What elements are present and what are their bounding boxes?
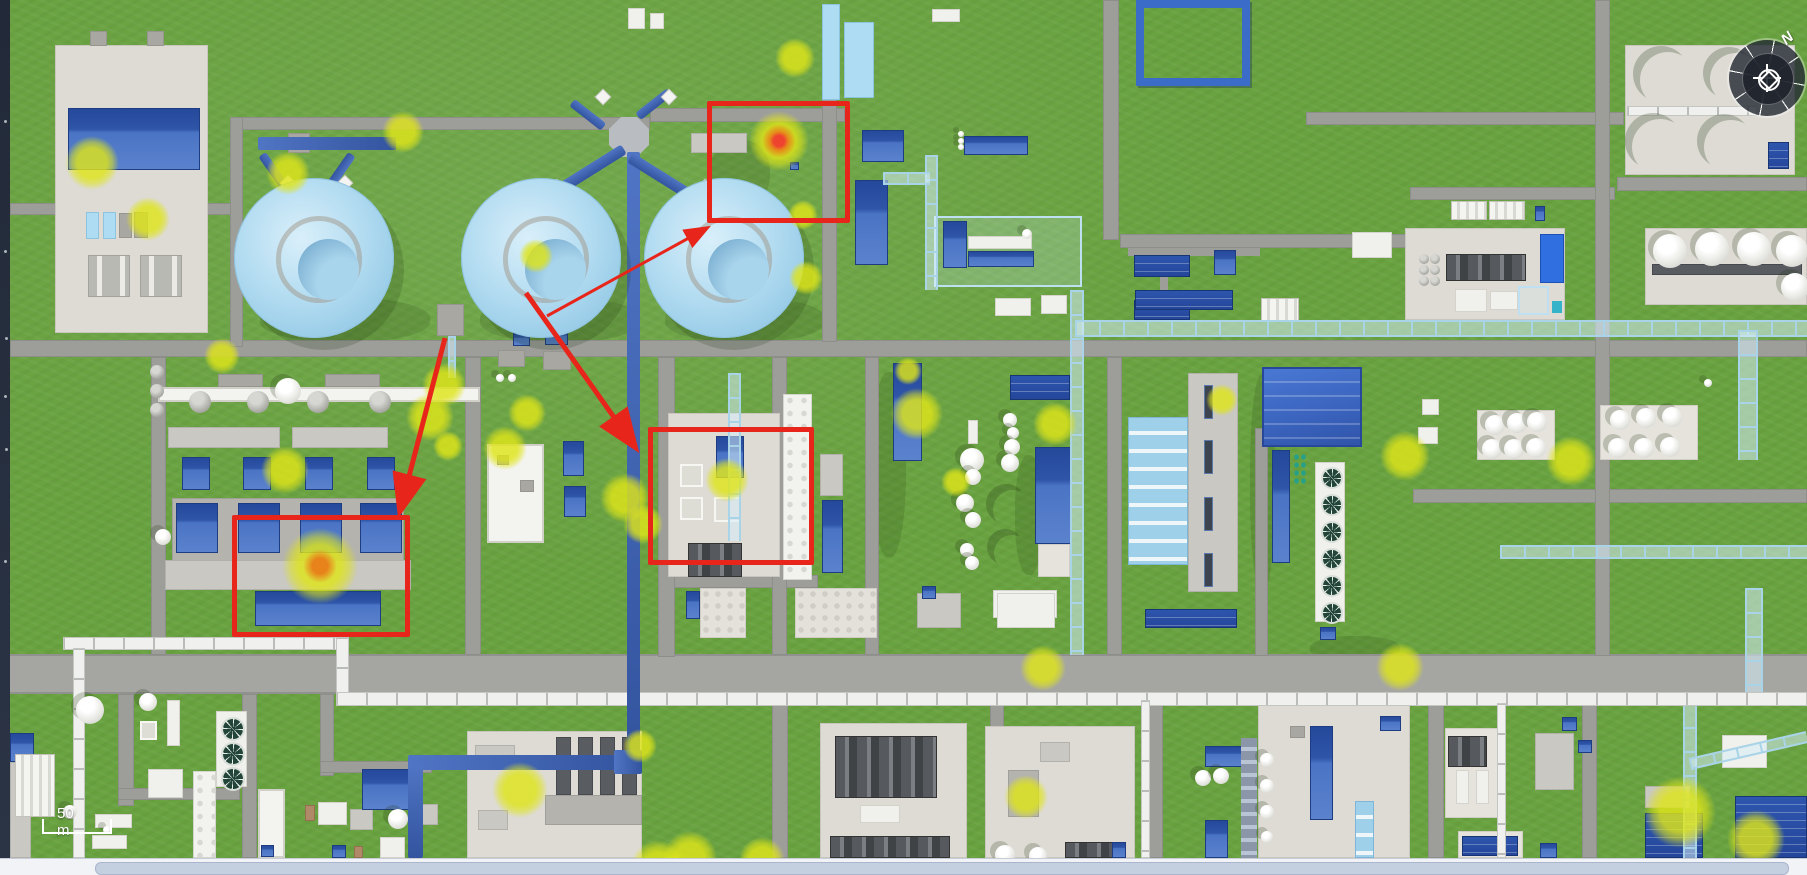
white-pipeline xyxy=(336,637,349,699)
building xyxy=(1552,301,1562,313)
building xyxy=(90,31,107,46)
background-dot xyxy=(4,120,7,123)
building xyxy=(922,586,936,599)
building xyxy=(88,255,130,297)
building xyxy=(1562,717,1577,731)
road xyxy=(1410,187,1615,200)
storage-tank xyxy=(1526,438,1546,458)
building xyxy=(855,180,888,265)
app-background-strip xyxy=(0,0,10,875)
road xyxy=(1617,177,1807,191)
storage-tank xyxy=(189,391,211,413)
building xyxy=(1380,716,1401,731)
building xyxy=(147,31,164,46)
building xyxy=(1010,375,1070,400)
heat-spot-marker[interactable] xyxy=(492,762,548,818)
cooling-fan-icon xyxy=(1321,467,1343,489)
heat-spot-marker[interactable] xyxy=(789,261,823,295)
road xyxy=(1413,489,1807,503)
building xyxy=(380,837,405,858)
building xyxy=(1035,447,1072,544)
storage-tank xyxy=(1632,119,1688,175)
storage-tank xyxy=(1781,273,1807,301)
pipe-rack xyxy=(1738,330,1758,460)
white-pipeline xyxy=(336,692,1807,706)
building xyxy=(92,835,127,849)
storage-tank xyxy=(1430,254,1440,264)
road xyxy=(1428,698,1444,858)
heat-spot-marker[interactable] xyxy=(894,357,922,385)
scale-bracket xyxy=(42,819,112,834)
storage-tank xyxy=(1504,439,1524,459)
building xyxy=(844,22,874,98)
cooling-fan-icon xyxy=(1321,548,1343,570)
storage-tank xyxy=(155,529,171,545)
building xyxy=(1214,250,1236,275)
building xyxy=(1540,843,1557,858)
storage-tank xyxy=(247,391,269,413)
building xyxy=(1768,142,1789,169)
building xyxy=(1578,740,1592,753)
building xyxy=(1352,232,1392,258)
building xyxy=(1627,106,1757,116)
building xyxy=(1145,609,1237,628)
building xyxy=(1451,201,1487,220)
storage-tank xyxy=(958,144,964,150)
road xyxy=(772,694,788,858)
storage-tank xyxy=(1527,412,1547,432)
pipe-rack xyxy=(1745,588,1763,698)
storage-tank xyxy=(1653,234,1687,268)
heat-spot-marker[interactable] xyxy=(623,729,657,763)
building xyxy=(564,486,586,517)
road xyxy=(1306,112,1624,125)
building xyxy=(1355,801,1374,858)
building xyxy=(1041,295,1067,314)
horizontal-scrollbar[interactable] xyxy=(0,858,1807,875)
heat-spot-marker[interactable] xyxy=(775,38,815,78)
storage-tank xyxy=(1608,438,1628,458)
building xyxy=(140,255,182,297)
road xyxy=(1582,698,1597,858)
building xyxy=(140,721,157,740)
storage-tank xyxy=(1213,768,1229,784)
background-dot xyxy=(4,395,7,398)
building xyxy=(1476,770,1489,804)
building xyxy=(997,593,1055,628)
storage-tank xyxy=(1260,779,1274,793)
white-pipeline xyxy=(1497,703,1506,858)
building xyxy=(968,251,1034,267)
building xyxy=(292,427,388,448)
building xyxy=(686,591,700,619)
pipe-cap xyxy=(596,90,610,104)
cooling-fan-icon xyxy=(1321,521,1343,543)
building xyxy=(1205,820,1228,858)
cooling-fan-icon xyxy=(1321,575,1343,597)
storage-tank xyxy=(1662,407,1682,427)
storage-tank xyxy=(1485,415,1505,435)
storage-tank xyxy=(275,378,301,404)
heat-spot-marker[interactable] xyxy=(261,446,309,494)
plant-map-canvas[interactable]: N 50 m xyxy=(10,0,1807,858)
building xyxy=(563,441,584,476)
cooling-fan-icon xyxy=(221,767,245,791)
storage-tank xyxy=(307,391,329,413)
storage-tank xyxy=(1419,265,1429,275)
cooling-fan-icon xyxy=(1321,494,1343,516)
building xyxy=(860,805,900,823)
building xyxy=(1040,742,1070,762)
building xyxy=(964,136,1028,155)
background-dot xyxy=(5,448,8,451)
building xyxy=(1462,836,1518,856)
storage-tank xyxy=(150,365,164,379)
horizontal-scrollbar-thumb[interactable] xyxy=(95,862,1789,875)
storage-tank xyxy=(1419,254,1429,264)
road xyxy=(10,654,1807,694)
building xyxy=(968,236,1032,249)
building xyxy=(1518,286,1549,315)
concrete-pad xyxy=(55,45,208,333)
storage-tank xyxy=(1482,439,1502,459)
building xyxy=(148,769,183,798)
heat-spot-marker[interactable] xyxy=(126,197,170,241)
storage-tank xyxy=(1704,120,1758,174)
storage-tank xyxy=(1737,232,1771,266)
building xyxy=(1261,298,1299,321)
heat-spot-marker[interactable] xyxy=(382,111,424,153)
building xyxy=(350,809,373,830)
heat-spot-marker[interactable] xyxy=(1644,776,1716,848)
building xyxy=(700,588,746,638)
building xyxy=(1272,450,1290,563)
storage-tank xyxy=(965,512,981,528)
compass-control[interactable] xyxy=(1729,40,1805,116)
storage-tank xyxy=(1640,52,1696,108)
building xyxy=(168,427,280,448)
building xyxy=(932,9,960,22)
building xyxy=(795,588,877,638)
storage-tank xyxy=(1260,753,1274,767)
building xyxy=(305,805,315,821)
white-pipeline xyxy=(63,637,348,650)
heat-spot-marker[interactable] xyxy=(1004,775,1048,819)
pipe-rack xyxy=(883,172,930,185)
building xyxy=(545,795,642,825)
building xyxy=(1293,453,1308,485)
heat-spot-marker[interactable] xyxy=(1033,402,1077,446)
building xyxy=(650,13,664,29)
storage-tank xyxy=(960,543,974,557)
building xyxy=(830,836,950,858)
storage-tank xyxy=(1636,408,1656,428)
building xyxy=(1446,254,1526,281)
background-dot xyxy=(4,560,7,563)
heat-spot-marker[interactable] xyxy=(204,338,240,374)
storage-tank xyxy=(1003,413,1017,427)
building xyxy=(943,221,967,268)
app-viewport: N 50 m xyxy=(0,0,1807,875)
building xyxy=(822,4,840,100)
storage-tank xyxy=(958,131,964,137)
storage-tank xyxy=(1007,427,1019,439)
storage-tank xyxy=(1260,805,1274,819)
storage-tank xyxy=(1001,454,1019,472)
white-pipeline xyxy=(1141,700,1150,858)
blue-pipeline xyxy=(408,764,423,858)
building xyxy=(862,130,904,162)
blue-pipeline xyxy=(627,152,640,758)
building xyxy=(1310,726,1333,820)
heat-spot-marker[interactable] xyxy=(433,431,463,461)
building xyxy=(15,754,55,817)
road xyxy=(1107,357,1122,655)
building xyxy=(1455,289,1487,312)
heat-spot-marker[interactable] xyxy=(1020,645,1066,691)
building xyxy=(1136,0,1250,86)
building xyxy=(1128,417,1188,565)
lpg-sphere-tank xyxy=(234,178,394,338)
building xyxy=(437,304,464,336)
storage-tank xyxy=(1634,438,1654,458)
building xyxy=(318,802,347,825)
annotation-rectangle xyxy=(707,101,850,223)
heat-spot-marker[interactable] xyxy=(65,136,119,190)
building xyxy=(218,374,263,387)
storage-tank xyxy=(995,845,1015,858)
building xyxy=(995,298,1031,316)
building xyxy=(1540,234,1564,283)
building xyxy=(1204,440,1213,474)
storage-tank xyxy=(508,374,516,382)
building xyxy=(1448,736,1487,767)
heat-spot-marker[interactable] xyxy=(483,426,527,470)
building xyxy=(1490,291,1518,310)
building xyxy=(103,212,116,239)
storage-tank xyxy=(1430,276,1440,286)
building xyxy=(1290,726,1305,738)
building xyxy=(367,457,395,490)
building xyxy=(167,700,180,746)
storage-tank xyxy=(496,374,504,382)
storage-tank xyxy=(76,696,104,724)
storage-tank xyxy=(150,403,164,417)
pipe-rack xyxy=(1075,320,1807,337)
storage-tank xyxy=(1776,235,1807,267)
building xyxy=(1456,770,1469,804)
building xyxy=(261,845,274,857)
storage-tank xyxy=(150,384,164,398)
pipe-rack xyxy=(1070,290,1084,655)
annotation-rectangle xyxy=(232,515,410,637)
storage-tank xyxy=(1695,232,1729,266)
cooling-fan-icon xyxy=(221,742,245,766)
building xyxy=(354,846,363,858)
storage-tank xyxy=(1261,831,1273,843)
heat-spot-marker[interactable] xyxy=(508,394,546,432)
building xyxy=(182,457,210,490)
heat-spot-marker[interactable] xyxy=(266,151,310,195)
building xyxy=(1135,290,1233,310)
blue-pipeline xyxy=(258,137,396,150)
cooling-fan-icon xyxy=(221,717,245,741)
building xyxy=(1489,201,1525,220)
building xyxy=(1134,255,1190,277)
storage-tank xyxy=(1195,770,1211,786)
annotation-rectangle xyxy=(648,427,814,565)
heat-spot-marker[interactable] xyxy=(519,239,553,273)
storage-tank xyxy=(369,391,391,413)
heat-spot-marker[interactable] xyxy=(891,388,943,440)
building xyxy=(325,374,380,387)
building xyxy=(1262,367,1362,447)
building xyxy=(176,503,218,553)
building xyxy=(1205,746,1242,767)
building xyxy=(820,454,843,496)
background-dot xyxy=(4,250,7,253)
building xyxy=(628,8,645,29)
building xyxy=(193,771,216,858)
storage-tank xyxy=(1610,410,1630,430)
road xyxy=(1103,0,1119,240)
building xyxy=(1320,627,1336,640)
building xyxy=(1422,399,1439,415)
heat-spot-marker[interactable] xyxy=(1206,384,1238,416)
building xyxy=(822,500,843,573)
heat-spot-marker[interactable] xyxy=(941,467,971,497)
pipe-rack xyxy=(1500,545,1807,559)
building xyxy=(498,350,525,367)
building xyxy=(968,420,978,444)
building xyxy=(835,736,937,798)
building xyxy=(1112,842,1126,858)
storage-tank xyxy=(1022,229,1032,239)
storage-tank xyxy=(1029,847,1047,858)
building xyxy=(1204,553,1213,587)
storage-tank xyxy=(1430,265,1440,275)
storage-tank xyxy=(1507,413,1527,433)
storage-tank xyxy=(965,556,979,570)
building xyxy=(332,845,346,858)
heat-spot-marker[interactable] xyxy=(1380,431,1430,481)
storage-tank xyxy=(994,535,1030,571)
building xyxy=(362,769,409,810)
building xyxy=(520,480,534,492)
storage-tank xyxy=(993,490,1033,530)
heat-spot-marker[interactable] xyxy=(1376,643,1424,691)
storage-tank xyxy=(1704,379,1712,387)
background-dot xyxy=(5,337,8,340)
building xyxy=(1535,206,1545,221)
road xyxy=(10,340,1807,357)
storage-tank xyxy=(1004,439,1020,455)
building xyxy=(305,457,333,490)
storage-tank xyxy=(1660,437,1680,457)
concrete-pad xyxy=(1038,544,1070,577)
building xyxy=(86,212,99,239)
building xyxy=(1241,738,1257,858)
storage-tank xyxy=(388,809,408,829)
cooling-fan-icon xyxy=(1321,602,1343,624)
building xyxy=(543,351,571,370)
building xyxy=(1535,733,1574,790)
heat-spot-marker[interactable] xyxy=(1546,436,1596,486)
storage-tank xyxy=(1419,276,1429,286)
road xyxy=(1255,428,1268,656)
storage-tank xyxy=(139,693,157,711)
building xyxy=(1204,497,1213,531)
